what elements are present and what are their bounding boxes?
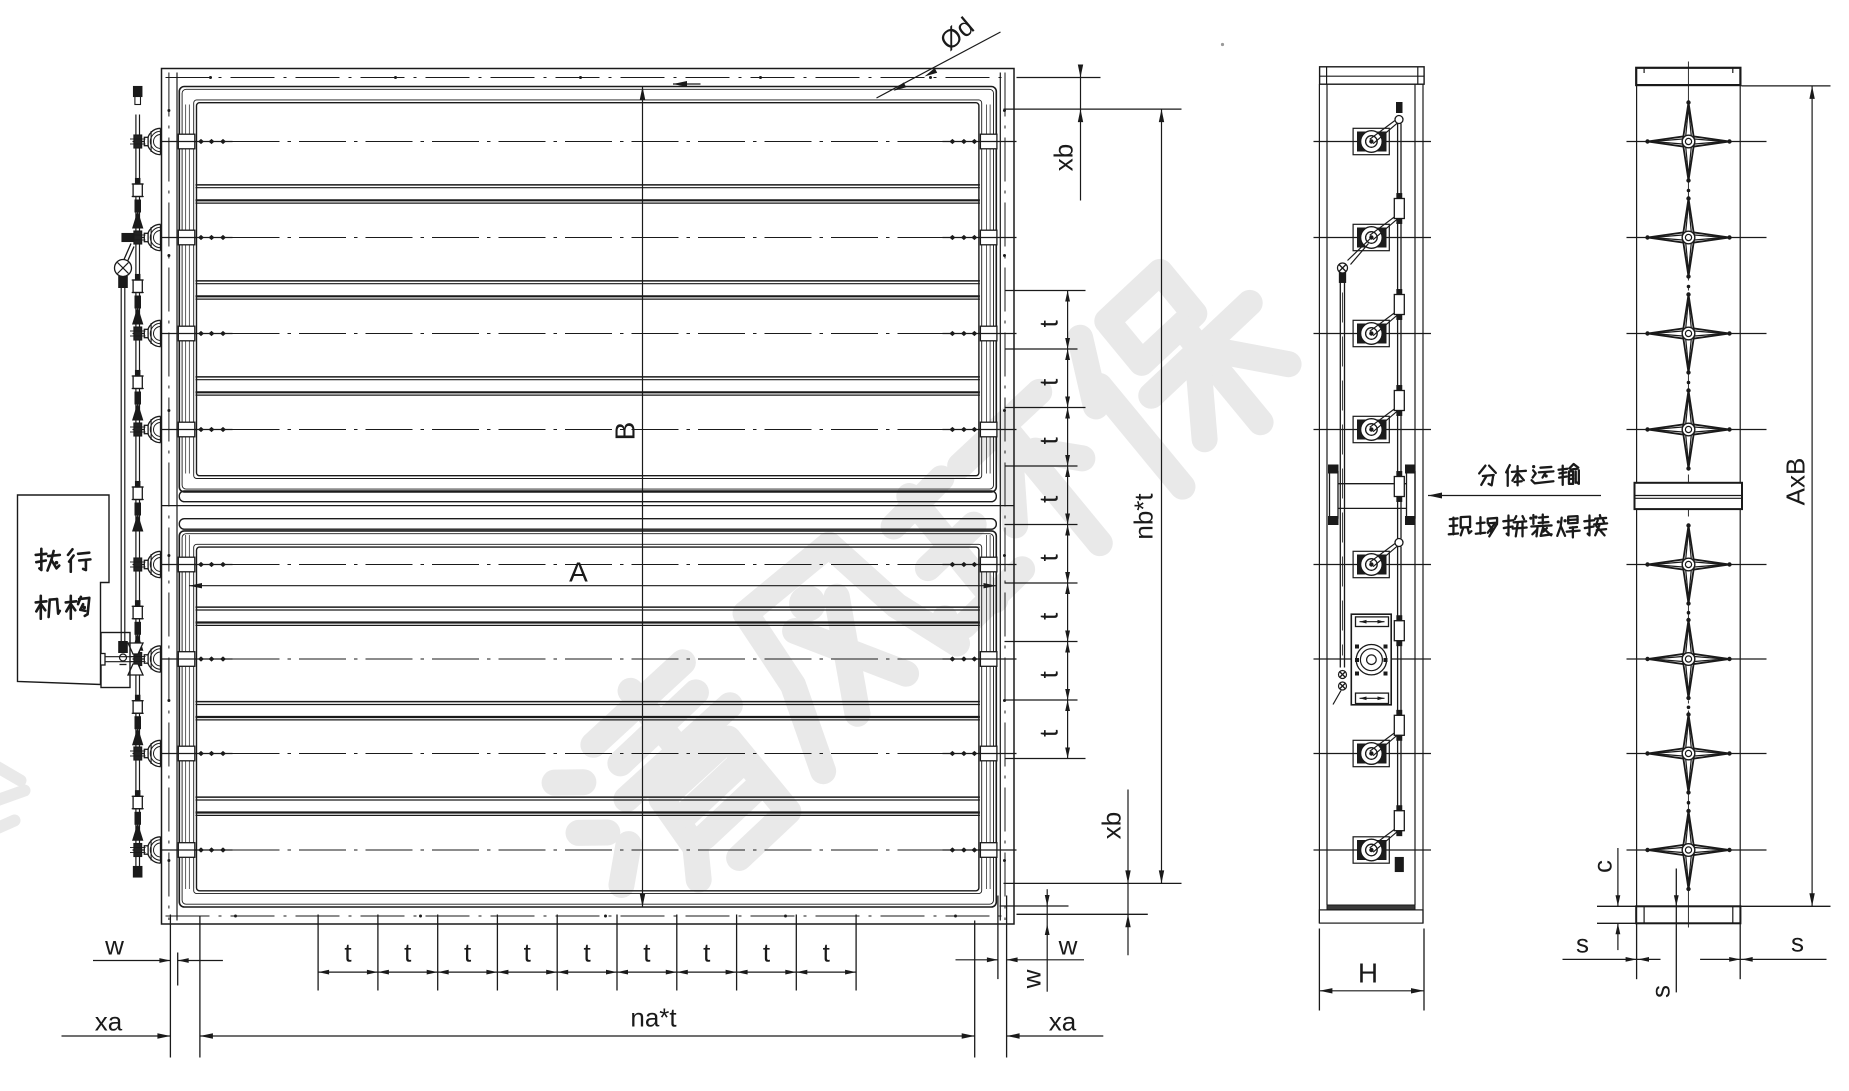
svg-text:s: s — [1576, 929, 1589, 959]
svg-text:A: A — [569, 557, 588, 588]
svg-text:xb: xb — [1049, 144, 1079, 171]
svg-text:t: t — [464, 938, 472, 968]
svg-text:t: t — [583, 938, 591, 968]
svg-text:t: t — [823, 938, 831, 968]
svg-text:H: H — [1358, 958, 1378, 989]
svg-text:na*t: na*t — [630, 1003, 677, 1033]
svg-text:t: t — [1034, 729, 1064, 737]
svg-text:xa: xa — [1049, 1007, 1077, 1037]
svg-text:t: t — [1034, 670, 1064, 678]
svg-text:B: B — [610, 422, 641, 441]
svg-text:t: t — [703, 938, 711, 968]
svg-text:t: t — [1034, 319, 1064, 327]
svg-text:w: w — [1017, 969, 1047, 989]
svg-text:t: t — [404, 938, 412, 968]
svg-text:t: t — [1034, 436, 1064, 444]
svg-text:w: w — [104, 931, 124, 961]
svg-text:w: w — [1058, 931, 1078, 961]
svg-text:c: c — [1588, 860, 1618, 873]
svg-text:t: t — [1034, 612, 1064, 620]
svg-text:t: t — [763, 938, 771, 968]
svg-text:t: t — [1034, 378, 1064, 386]
svg-text:xb: xb — [1097, 812, 1127, 839]
svg-text:t: t — [1034, 495, 1064, 503]
svg-text:t: t — [524, 938, 532, 968]
svg-text:s: s — [1646, 985, 1676, 998]
svg-text:t: t — [344, 938, 352, 968]
svg-text:xa: xa — [95, 1007, 123, 1037]
svg-text:s: s — [1791, 928, 1804, 958]
svg-text:t: t — [643, 938, 651, 968]
svg-text:t: t — [1034, 553, 1064, 561]
svg-text:AxB: AxB — [1781, 458, 1811, 506]
svg-text:nb*t: nb*t — [1129, 493, 1159, 540]
